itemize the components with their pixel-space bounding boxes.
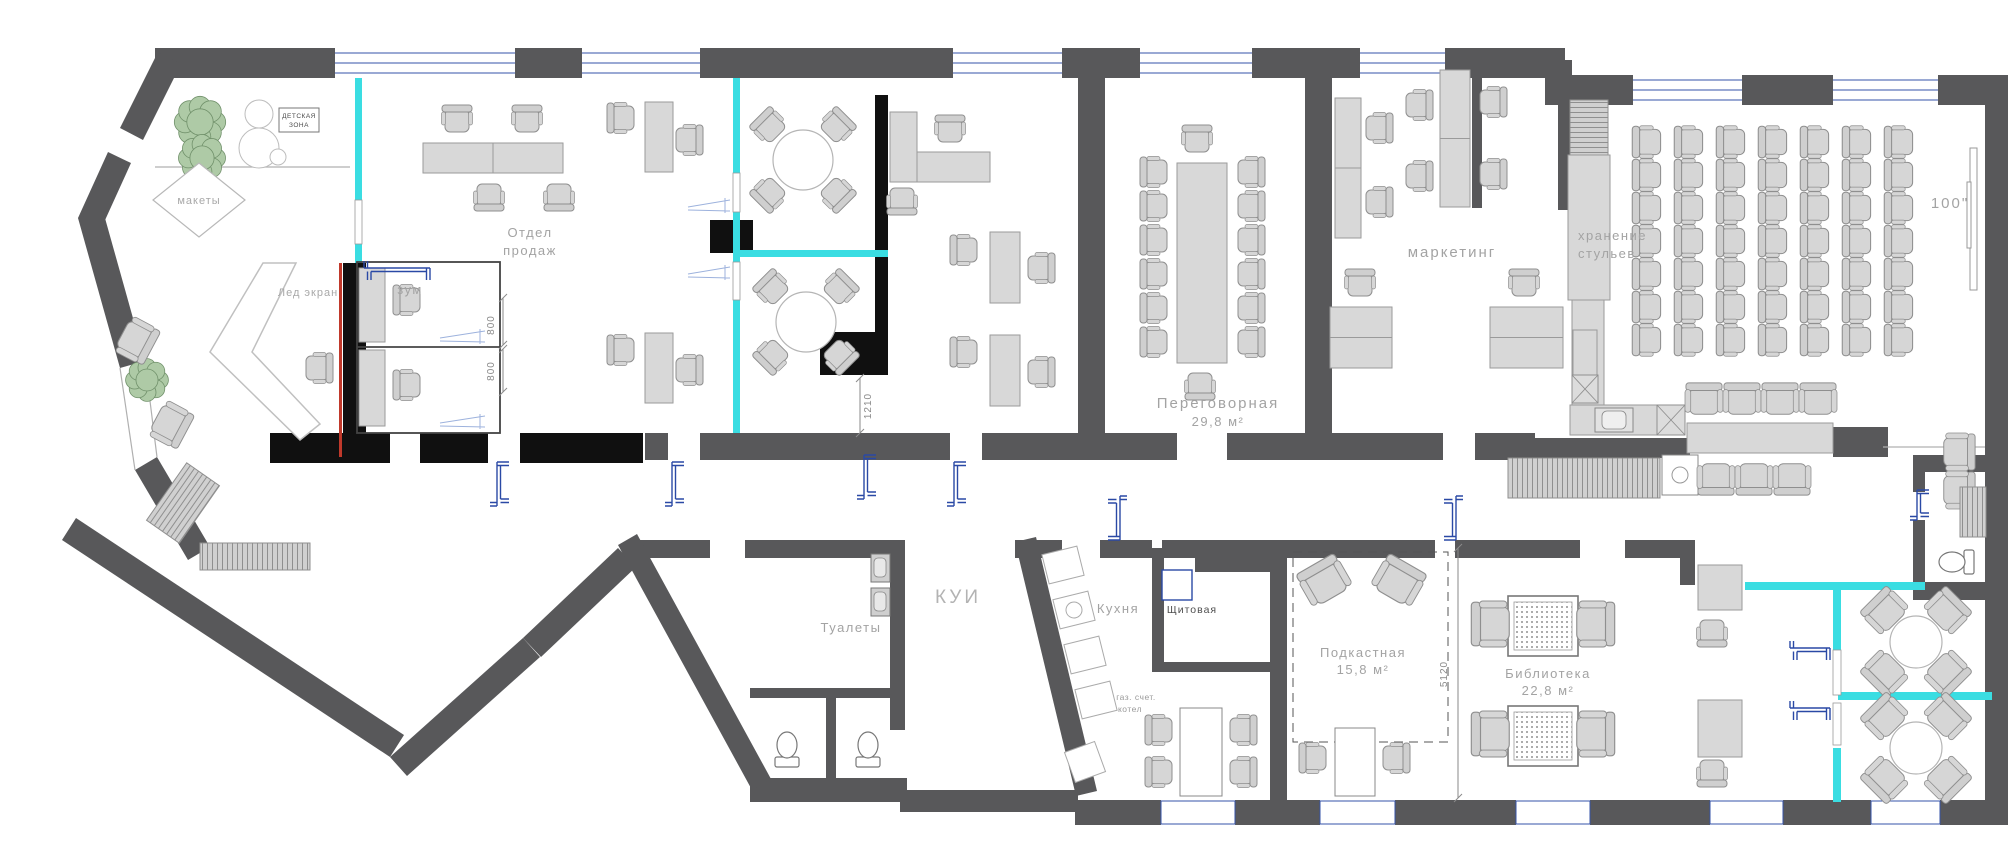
window: [1871, 801, 1940, 824]
floor-plan-drawing: ДЕТСКАЯ ЗОНА макеты Лед экран зум Отдел …: [0, 0, 2008, 866]
kids-zone-label-line1: ДЕТСКАЯ: [282, 113, 316, 120]
chair: [1345, 269, 1376, 296]
wall: [982, 433, 1177, 460]
cabinet-x: [1572, 375, 1598, 403]
glass-wall: [355, 78, 362, 200]
chair: [1758, 126, 1786, 159]
chair: [1884, 159, 1912, 192]
column-box: [1662, 455, 1698, 495]
wall: [1490, 438, 1690, 458]
chair: [1674, 192, 1702, 225]
wall: [1330, 433, 1443, 460]
chair: [1884, 192, 1912, 225]
door-symbol: [1444, 496, 1463, 540]
desk: [917, 152, 990, 182]
wall: [645, 433, 668, 460]
glass-wall: [355, 244, 362, 263]
chair: [1140, 259, 1167, 290]
desk: [990, 232, 1020, 303]
armchair: [1471, 601, 1509, 647]
desk: [1698, 700, 1742, 757]
glass-door-gap: [1833, 703, 1841, 745]
wall: [1100, 540, 1152, 558]
dimension-line: [1454, 544, 1462, 802]
chair: [1674, 324, 1702, 357]
wall: [750, 778, 907, 802]
window: [1516, 801, 1590, 824]
wall: [750, 688, 900, 698]
chair: [1674, 159, 1702, 192]
chair: [950, 337, 977, 368]
door-symbol: [1108, 496, 1127, 540]
chair: [1758, 291, 1786, 324]
chair: [1632, 159, 1660, 192]
glass-door-gap: [1833, 650, 1841, 695]
desk: [359, 350, 385, 426]
desk: [1440, 70, 1470, 207]
kitchen-cabinet: [1064, 636, 1106, 674]
wall: [155, 48, 335, 78]
wall: [1742, 75, 1833, 105]
kitchen-cabinet: [1075, 681, 1117, 719]
library-shelf-rug: [1508, 596, 1578, 656]
wall: [640, 540, 710, 558]
round-table-group: [1890, 722, 1942, 774]
chair: [1884, 126, 1912, 159]
chair: [1758, 192, 1786, 225]
meeting-room-area: 29,8 м²: [1192, 414, 1245, 429]
chair: [1800, 225, 1828, 258]
round-table-group: [1890, 616, 1942, 668]
chair: [1366, 187, 1393, 218]
desk: [423, 143, 563, 173]
chair: [1028, 253, 1055, 284]
chair: [1299, 743, 1326, 774]
chair: [512, 105, 543, 132]
door-symbol: [857, 455, 876, 499]
chair: [1140, 327, 1167, 358]
sales-label-line2: продаж: [503, 243, 557, 258]
desk: [1573, 330, 1597, 375]
chair: [1480, 87, 1507, 118]
marketing-label: маркетинг: [1408, 244, 1497, 261]
desk: [1177, 163, 1227, 363]
door-leaf-symbol: [688, 265, 730, 280]
glass-wall: [1838, 692, 1992, 700]
wall: [890, 540, 905, 730]
chair: [607, 103, 634, 134]
chair: [1842, 291, 1870, 324]
door-leaf-symbol: [688, 198, 730, 213]
screen-size-label: 100": [1931, 195, 1969, 212]
wall: [700, 48, 953, 78]
door-symbol: [1790, 701, 1830, 720]
dim-5120: 5120: [1439, 661, 1450, 687]
chair: [1884, 291, 1912, 324]
glass-wall: [1833, 748, 1841, 802]
wall: [1152, 548, 1164, 670]
chair: [1632, 291, 1660, 324]
toilet: [856, 732, 880, 767]
library-area: 22,8 м²: [1522, 683, 1575, 698]
chair: [935, 115, 966, 142]
chair: [1140, 157, 1167, 188]
window: [1320, 801, 1395, 824]
armchair: [1697, 464, 1735, 495]
desk: [890, 112, 917, 182]
chair: [1140, 293, 1167, 324]
library-label: Библиотека: [1505, 666, 1591, 681]
chair: [1716, 225, 1744, 258]
cabinet-x: [1657, 405, 1685, 435]
podcast-room-area: 15,8 м²: [1337, 662, 1390, 677]
desk: [645, 102, 673, 172]
wall: [700, 433, 950, 460]
wall: [1940, 800, 2005, 825]
chair: [950, 235, 977, 266]
chair: [1383, 743, 1410, 774]
wall: [1985, 75, 2008, 825]
door-symbol: [1910, 490, 1929, 520]
glass-wall: [733, 250, 888, 257]
armchair: [1723, 383, 1761, 414]
desk: [1335, 98, 1361, 238]
kids-zone-label-line2: ЗОНА: [289, 122, 309, 129]
wall: [1162, 540, 1280, 558]
podcast-table: [1335, 728, 1375, 796]
window: [1710, 801, 1783, 824]
zoom-room-label: зум: [397, 282, 423, 297]
kui-label: КУИ: [935, 587, 981, 608]
electrical-cabinet: [1162, 570, 1192, 600]
chair: [1758, 159, 1786, 192]
desk: [1330, 307, 1392, 368]
glass-wall: [733, 300, 740, 433]
wall: [1472, 60, 1482, 208]
toilets-label: Туалеты: [821, 620, 882, 635]
chair: [1716, 324, 1744, 357]
chair: [1238, 293, 1265, 324]
glass-door-gap: [733, 262, 740, 300]
desk: [990, 335, 1020, 406]
glass-wall: [733, 78, 740, 175]
dim-800-b: 800: [486, 361, 497, 381]
chair: [607, 335, 634, 366]
chair: [1632, 324, 1660, 357]
sink: [871, 588, 890, 616]
wall: [1078, 78, 1105, 435]
desk: [1490, 307, 1563, 368]
armchair: [1471, 711, 1509, 757]
armchair: [1295, 553, 1354, 609]
armchair: [1685, 383, 1723, 414]
chair: [1716, 291, 1744, 324]
desk: [1687, 423, 1833, 453]
wall-black: [710, 220, 753, 253]
desk: [359, 268, 385, 342]
wall: [1075, 800, 1161, 825]
chair: [1674, 225, 1702, 258]
armchair: [1577, 711, 1615, 757]
chair: [1800, 159, 1828, 192]
wall: [1833, 427, 1888, 457]
armchair: [1799, 383, 1837, 414]
wall: [1913, 520, 1925, 585]
armchair: [147, 399, 195, 450]
chair: [1480, 159, 1507, 190]
chair: [1238, 191, 1265, 222]
kitchen-label: Кухня: [1097, 601, 1139, 616]
chair-storage-label-line1: хранение: [1578, 228, 1647, 243]
wall-black: [270, 433, 390, 463]
meeting-room-label: Переговорная: [1157, 395, 1280, 412]
wall-diagonal: [120, 52, 181, 140]
electrical-room-label: Щитовая: [1167, 604, 1217, 616]
chair: [1140, 191, 1167, 222]
chair: [1716, 159, 1744, 192]
chair: [1758, 225, 1786, 258]
armchair: [1944, 433, 1975, 471]
podcast-room-label: Подкастная: [1320, 645, 1406, 660]
door-leaf-symbol: [440, 329, 485, 344]
chair: [1800, 258, 1828, 291]
chair: [1758, 258, 1786, 291]
dining-table: [1180, 708, 1222, 796]
toilet: [1939, 550, 1974, 574]
chair: [1758, 324, 1786, 357]
wall: [1305, 78, 1332, 435]
kitchen-cabinet: [1053, 591, 1095, 629]
hatched-cabinet: [200, 543, 310, 570]
wall: [1467, 540, 1580, 558]
chair: [887, 188, 918, 215]
door-symbol: [947, 462, 966, 506]
chair: [1674, 291, 1702, 324]
chair: [1842, 324, 1870, 357]
chair: [1800, 192, 1828, 225]
wall: [1062, 48, 1140, 78]
chair: [1238, 225, 1265, 256]
chair: [1632, 258, 1660, 291]
chair: [1842, 225, 1870, 258]
door-leaf-symbol: [440, 414, 485, 429]
chair: [1406, 90, 1433, 121]
hatched-cabinet: [1508, 458, 1660, 498]
armchair: [1369, 553, 1428, 609]
chair: [1238, 259, 1265, 290]
gas-meter-label-line2: котел: [1118, 704, 1142, 714]
chair: [1145, 757, 1172, 788]
armchair: [1735, 464, 1773, 495]
chair: [393, 370, 420, 401]
glass-wall: [1745, 582, 1925, 590]
door-symbol: [1790, 641, 1830, 660]
hatched-cabinet: [1960, 487, 1986, 537]
chair: [1238, 157, 1265, 188]
chair: [1182, 125, 1213, 152]
armchair: [1761, 383, 1799, 414]
wall: [1227, 433, 1330, 460]
chair: [544, 184, 575, 211]
chair: [1632, 126, 1660, 159]
wall: [1287, 540, 1435, 558]
pouf: [270, 149, 286, 165]
chair: [1800, 126, 1828, 159]
pouf: [245, 100, 273, 128]
chair: [1842, 159, 1870, 192]
chair: [1716, 258, 1744, 291]
window: [1161, 801, 1235, 824]
wall: [1395, 800, 1516, 825]
wall-diagonal: [390, 638, 540, 776]
wall: [1195, 558, 1280, 572]
models-label: макеты: [177, 195, 220, 207]
wall: [1152, 662, 1287, 672]
wall: [900, 790, 1078, 812]
chair: [1230, 757, 1257, 788]
chair: [1366, 113, 1393, 144]
door-symbol: [490, 462, 509, 506]
screen-mount: [1967, 182, 1971, 248]
round-table-group: [773, 130, 833, 190]
chair: [442, 105, 473, 132]
chair: [1842, 258, 1870, 291]
hatched-cabinet: [1570, 100, 1608, 155]
armchair: [1773, 464, 1811, 495]
glass-wall: [1833, 590, 1841, 650]
chair: [1140, 225, 1167, 256]
wall: [1913, 472, 1925, 492]
wall: [1270, 540, 1287, 807]
chair: [474, 184, 505, 211]
wall: [1680, 540, 1695, 585]
glass-door-gap: [355, 200, 362, 244]
wall-diagonal: [523, 548, 636, 657]
chair: [1632, 192, 1660, 225]
chair: [1674, 258, 1702, 291]
wall: [1252, 48, 1360, 78]
chair: [306, 353, 333, 384]
chair-storage-label-line2: стульев: [1578, 246, 1636, 261]
sink: [871, 554, 890, 582]
chair: [1028, 357, 1055, 388]
plant: [126, 359, 169, 402]
library-shelf-rug: [1508, 706, 1578, 766]
chair: [1884, 258, 1912, 291]
glass-door-gap: [733, 173, 740, 212]
gas-meter-label-line1: газ. счет.: [1116, 692, 1156, 702]
led-screen-label: Лед экран: [278, 287, 338, 299]
wall: [1590, 800, 1710, 825]
floor-plan-canvas: ДЕТСКАЯ ЗОНА макеты Лед экран зум Отдел …: [0, 0, 2008, 866]
chair: [1674, 126, 1702, 159]
chair: [1800, 324, 1828, 357]
wall: [1783, 800, 1871, 825]
chair: [1716, 126, 1744, 159]
led-screen-strip: [339, 263, 342, 457]
chair: [676, 125, 703, 156]
chair: [676, 355, 703, 386]
chair: [1884, 324, 1912, 357]
wall-black: [520, 433, 643, 463]
chair: [1230, 715, 1257, 746]
dim-800-a: 800: [486, 315, 497, 335]
chair: [1509, 269, 1540, 296]
chair: [1842, 126, 1870, 159]
door-symbol: [665, 462, 684, 506]
dim-1210: 1210: [863, 393, 874, 419]
armchair: [1577, 601, 1615, 647]
chair: [1884, 225, 1912, 258]
desk: [645, 333, 673, 403]
wall-diagonal: [618, 534, 771, 790]
sales-label-line1: Отдел: [507, 225, 552, 240]
wall: [1235, 800, 1320, 825]
wall: [1922, 582, 1987, 594]
chair: [1406, 161, 1433, 192]
toilet: [775, 732, 799, 767]
chair: [1716, 192, 1744, 225]
sink-basin: [1602, 411, 1626, 429]
chair: [1697, 760, 1728, 787]
chair: [1238, 327, 1265, 358]
wall: [515, 48, 582, 78]
round-table-group: [776, 292, 836, 352]
chair: [1800, 291, 1828, 324]
chair: [1842, 192, 1870, 225]
chair: [1145, 715, 1172, 746]
chair: [1697, 620, 1728, 647]
desk: [1698, 565, 1742, 610]
wall-black: [420, 433, 488, 463]
